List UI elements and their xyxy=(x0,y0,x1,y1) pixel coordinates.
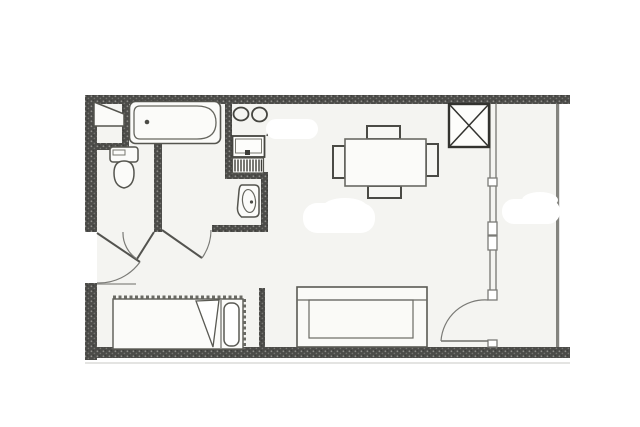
chair-right xyxy=(426,144,438,176)
balcony-outer-edge xyxy=(556,104,559,347)
wall-bed-stub xyxy=(259,288,265,347)
bathtub xyxy=(130,102,221,144)
shaft-x-box xyxy=(449,104,489,147)
single-bed xyxy=(113,297,245,349)
floor-plan-page xyxy=(0,0,640,427)
chair-top xyxy=(367,126,400,139)
window-mullion xyxy=(488,236,497,250)
balcony-door-frame-top xyxy=(488,290,497,300)
drainboard xyxy=(233,158,264,173)
wall-toilet-bathroom-divider xyxy=(154,144,162,232)
toilet-bowl xyxy=(114,161,134,188)
wall-kitchen-left xyxy=(225,104,232,179)
bathtub-drain xyxy=(145,120,150,125)
wall-bathroom-bottom xyxy=(212,225,268,232)
kitchen-tap xyxy=(245,150,250,155)
wall-bathroom-right xyxy=(261,179,268,232)
floor-plan-drawing xyxy=(0,0,640,427)
sofa xyxy=(297,287,427,347)
dining-table xyxy=(345,139,426,186)
chair-bottom xyxy=(368,186,401,198)
washbasin xyxy=(237,185,259,217)
balcony-door-frame-bottom xyxy=(488,340,497,347)
wall-left-lower xyxy=(85,283,97,360)
window-mullion xyxy=(488,178,497,186)
chair-left xyxy=(333,146,345,178)
window-mullion xyxy=(488,222,497,235)
pillow xyxy=(224,303,239,346)
washbasin-drain xyxy=(250,200,253,203)
